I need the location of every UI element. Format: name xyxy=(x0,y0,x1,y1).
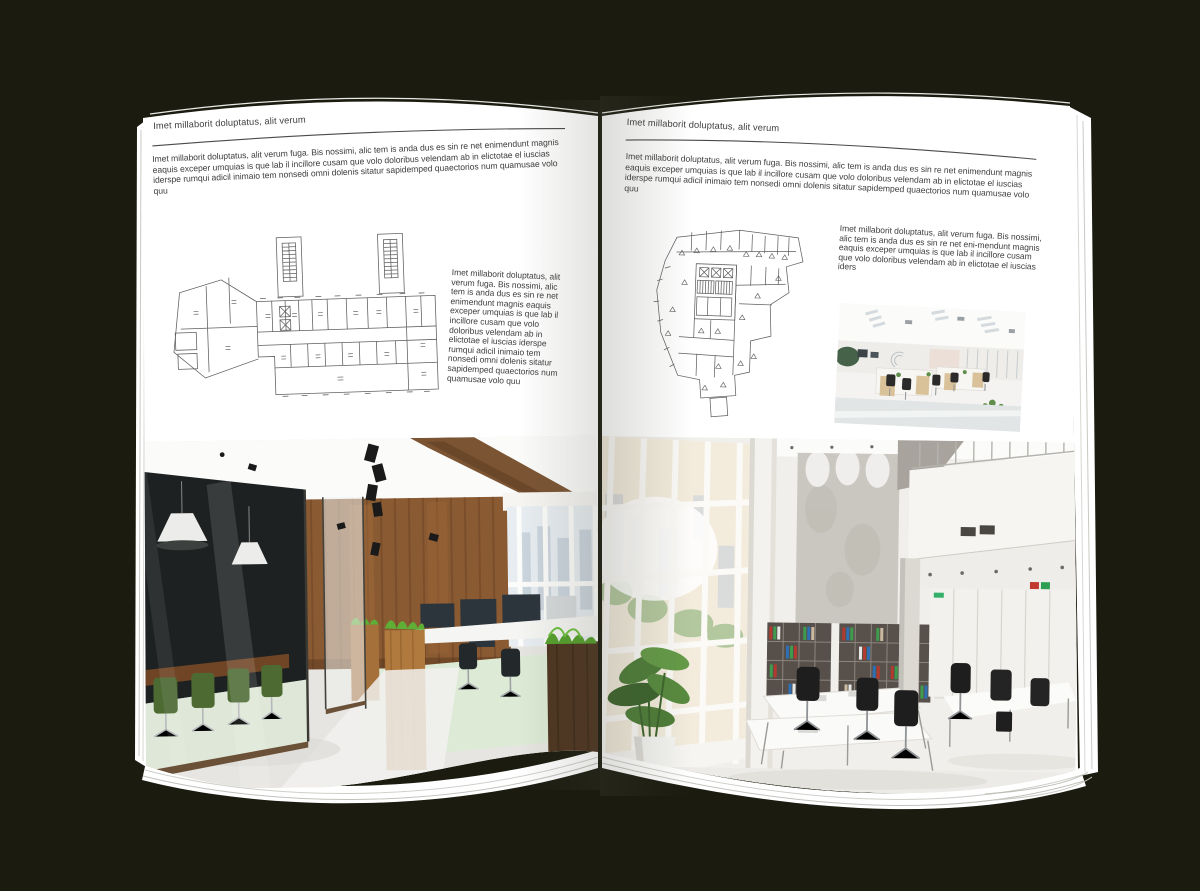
photo-open-office-small xyxy=(834,303,1026,432)
page-left-caption: Imet millaborit doluptatus, alit verum f… xyxy=(447,268,573,388)
brochure-spread-mockup: Imet millaborit doluptatus, alit verum I… xyxy=(0,0,1200,891)
page-right-caption: Imet millaborit doluptatus, alit verum f… xyxy=(838,224,1047,282)
photo-office-wood-glass xyxy=(126,435,601,790)
photo-atrium-office-large xyxy=(597,436,1080,807)
floorplan-left-figure xyxy=(160,228,446,412)
floorplan-right-figure xyxy=(643,220,808,423)
